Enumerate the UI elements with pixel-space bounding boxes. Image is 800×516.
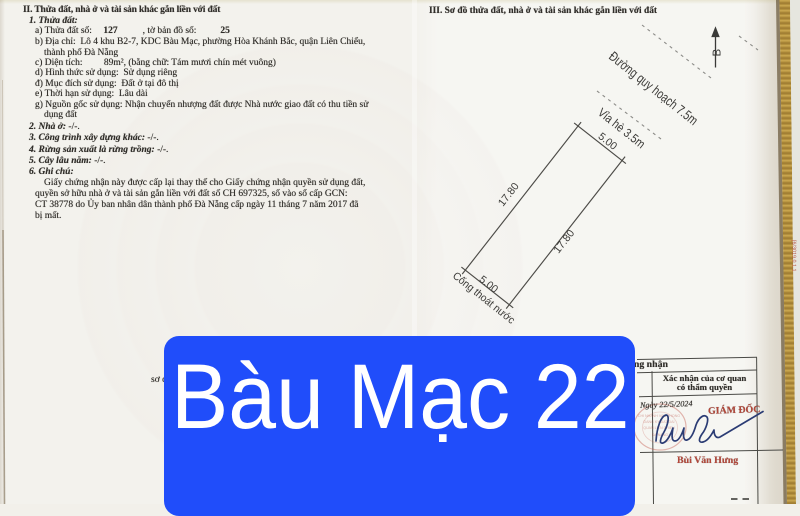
svg-text:Đường quy hoạch 7.5m: Đường quy hoạch 7.5m [606, 49, 701, 129]
svg-text:17.80: 17.80 [496, 180, 522, 208]
svg-text:CHI NHANH VAN PHONG: CHI NHANH VAN PHONG [638, 414, 680, 418]
svg-text:[6/3019.0 1.1: [6/3019.0 1.1 [791, 240, 797, 271]
svg-text:B: B [712, 49, 724, 57]
svg-text:DA NANG: DA NANG [652, 433, 668, 437]
svg-text:17.80: 17.80 [551, 227, 577, 255]
